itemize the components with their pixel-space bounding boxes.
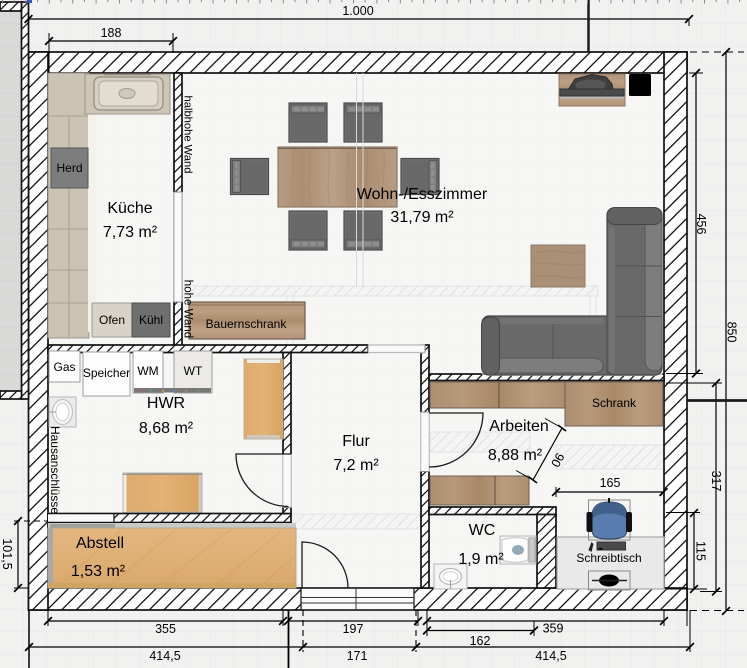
svg-text:WC: WC bbox=[469, 522, 496, 539]
svg-text:115: 115 bbox=[694, 541, 708, 561]
svg-text:WT: WT bbox=[184, 364, 203, 378]
svg-text:414,5: 414,5 bbox=[149, 649, 180, 663]
svg-text:Hausanschlüsse: Hausanschlüsse bbox=[48, 426, 62, 514]
svg-text:HWR: HWR bbox=[147, 395, 185, 412]
svg-text:414,5: 414,5 bbox=[535, 649, 566, 663]
svg-text:Speicher: Speicher bbox=[83, 366, 130, 380]
svg-text:355: 355 bbox=[155, 622, 176, 636]
svg-text:Gas: Gas bbox=[53, 360, 75, 374]
svg-text:Küche: Küche bbox=[107, 200, 152, 217]
svg-text:Kühl: Kühl bbox=[139, 313, 163, 327]
svg-text:8,68 m²: 8,68 m² bbox=[139, 420, 194, 437]
svg-text:Wohn-/Esszimmer: Wohn-/Esszimmer bbox=[357, 186, 488, 203]
svg-text:165: 165 bbox=[600, 476, 621, 490]
svg-text:Flur: Flur bbox=[342, 433, 370, 450]
svg-text:197: 197 bbox=[343, 622, 364, 636]
svg-text:7,73 m²: 7,73 m² bbox=[103, 224, 158, 241]
svg-text:Schrank: Schrank bbox=[592, 396, 637, 410]
svg-text:359: 359 bbox=[543, 622, 564, 636]
svg-text:31,79 m²: 31,79 m² bbox=[390, 209, 454, 226]
svg-text:Ofen: Ofen bbox=[99, 313, 125, 327]
svg-text:Arbeiten: Arbeiten bbox=[489, 418, 549, 435]
svg-text:1,53 m²: 1,53 m² bbox=[71, 563, 126, 580]
svg-text:1,9 m²: 1,9 m² bbox=[458, 551, 504, 568]
svg-text:101,5: 101,5 bbox=[0, 538, 14, 569]
svg-text:Herd: Herd bbox=[56, 161, 82, 175]
svg-text:1.000: 1.000 bbox=[342, 4, 373, 18]
svg-text:850: 850 bbox=[725, 322, 739, 343]
svg-text:7,2 m²: 7,2 m² bbox=[333, 457, 379, 474]
svg-text:Abstell: Abstell bbox=[76, 535, 124, 552]
svg-text:halbhohe Wand: halbhohe Wand bbox=[182, 96, 194, 174]
svg-text:WM: WM bbox=[137, 364, 158, 378]
svg-text:317: 317 bbox=[709, 471, 723, 492]
svg-text:456: 456 bbox=[694, 214, 708, 235]
svg-text:188: 188 bbox=[101, 26, 122, 40]
svg-text:171: 171 bbox=[347, 649, 368, 663]
svg-text:162: 162 bbox=[470, 634, 491, 648]
svg-text:Schreibtisch: Schreibtisch bbox=[576, 551, 641, 565]
svg-text:8,88 m²: 8,88 m² bbox=[488, 447, 543, 464]
svg-text:hohe Wand: hohe Wand bbox=[182, 280, 194, 338]
svg-text:Bauernschrank: Bauernschrank bbox=[206, 317, 288, 331]
